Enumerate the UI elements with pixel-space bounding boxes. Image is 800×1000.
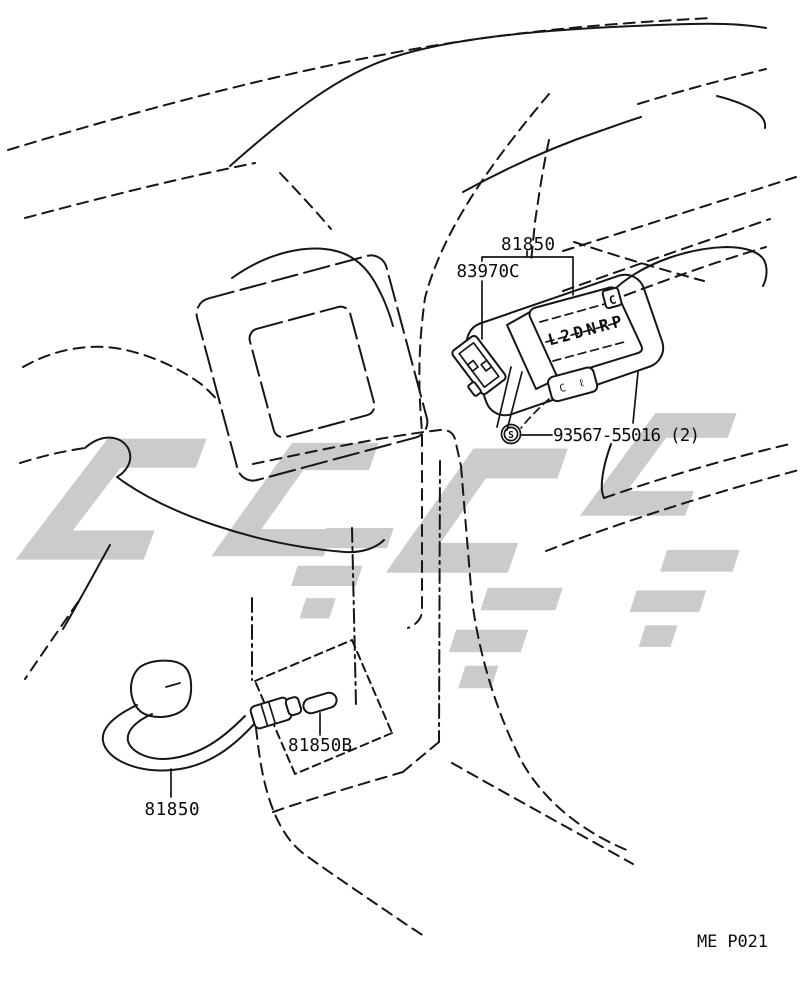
part-label-93567-55016: 93567-55016 (2) [553, 426, 700, 446]
wire-end-connector [249, 693, 303, 729]
dashboard-outline [8, 18, 799, 679]
part-label-81850b: 81850B [288, 736, 352, 756]
watermark-logo [44, 426, 736, 678]
page-code: ME P021 [697, 932, 768, 952]
part-label-81850-top: 81850 [501, 235, 555, 255]
parts-diagram-page: L2DNRP C C ℓ S [0, 0, 800, 1000]
parts-diagram: L2DNRP C C ℓ S [0, 0, 800, 1000]
screw-symbol-letter: S [508, 430, 514, 441]
wire-harness-81850 [103, 661, 303, 771]
clip-81850b [302, 691, 339, 715]
screw-symbol: S [502, 425, 521, 444]
part-label-81850-bottom: 81850 [145, 800, 200, 820]
shift-indicator-unit: L2DNRP C C ℓ [497, 287, 642, 430]
grommet [131, 661, 191, 717]
connector-83970c [445, 334, 507, 399]
part-label-83970c: 83970C [457, 262, 520, 282]
